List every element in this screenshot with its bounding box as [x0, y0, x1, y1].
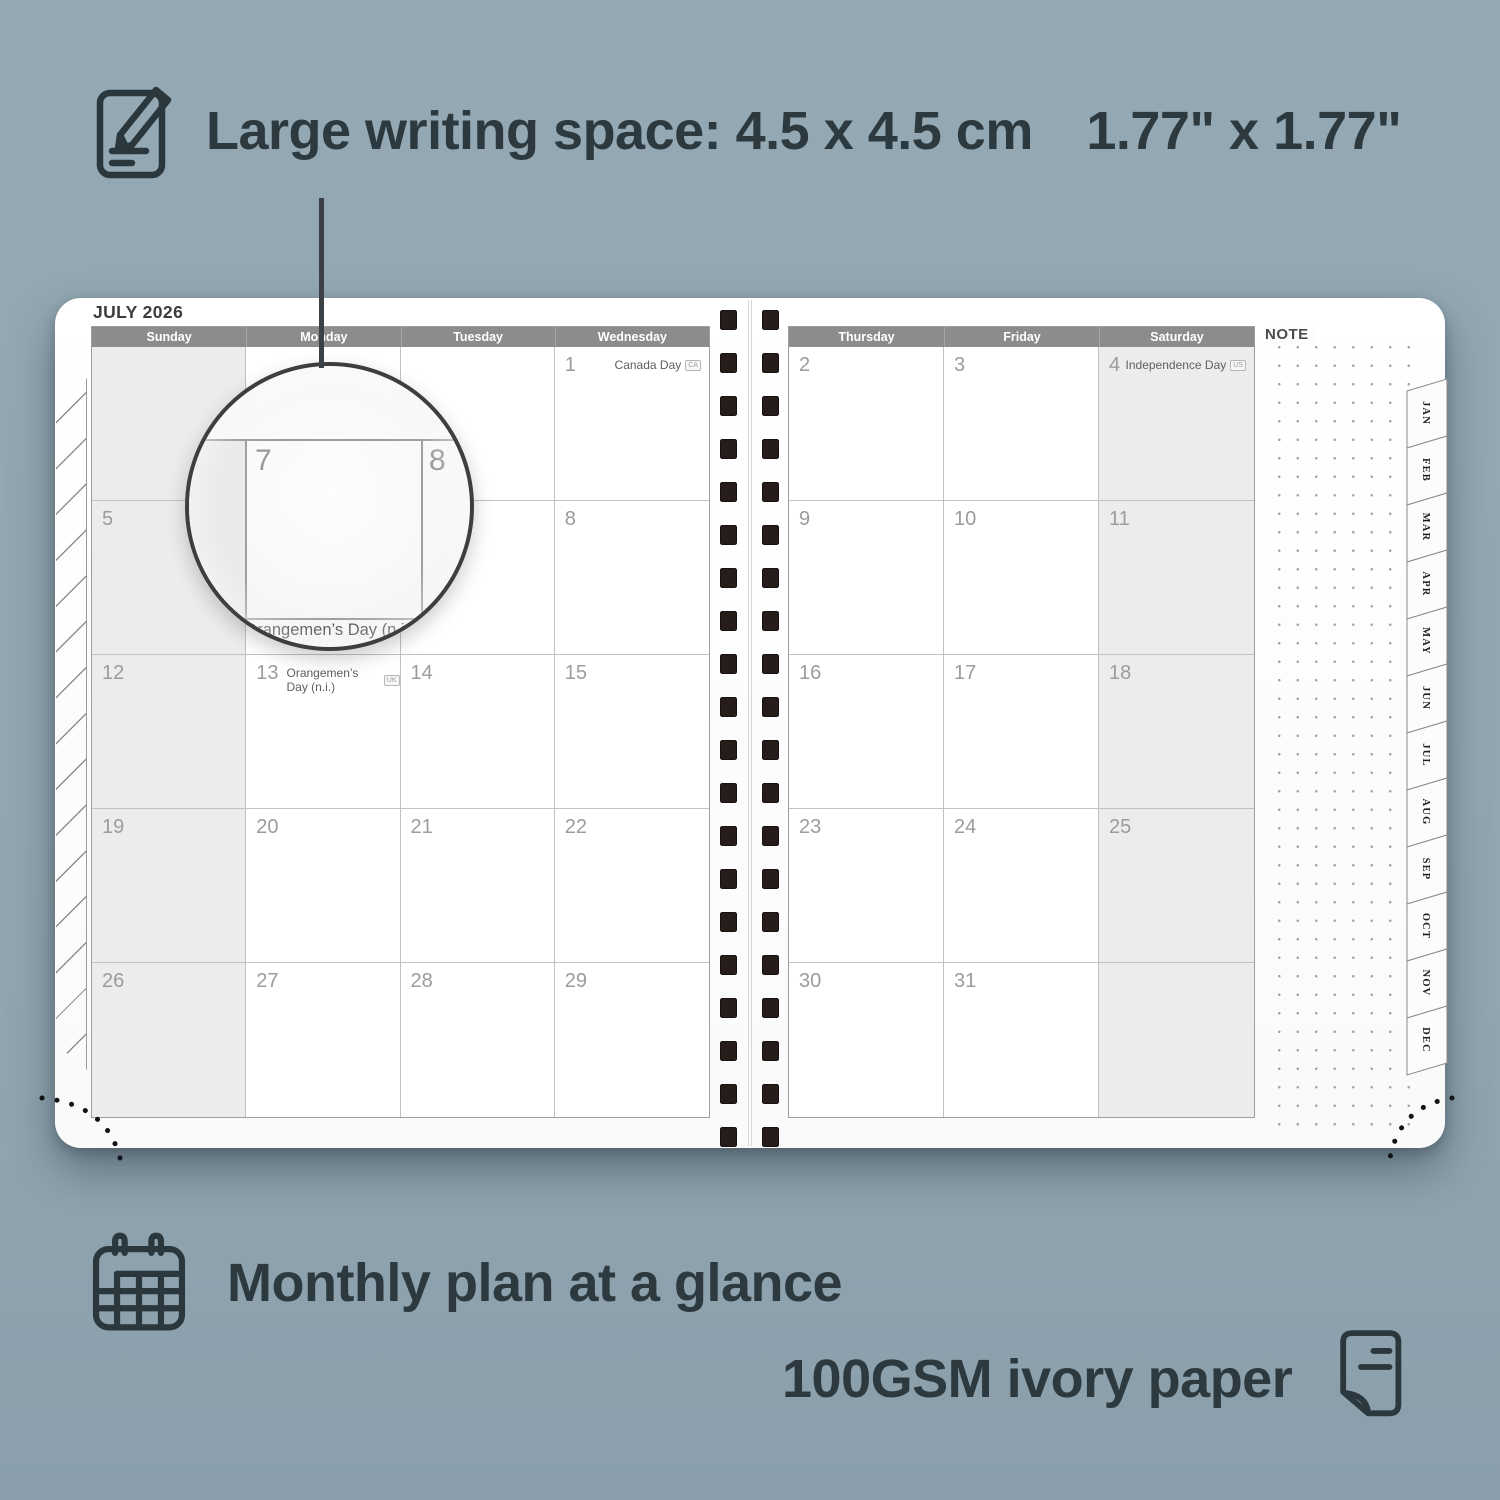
day-header: Thursday [789, 327, 944, 347]
day-number: 2 [789, 347, 810, 377]
holiday-label: Canada DayCA [615, 358, 701, 372]
day-number [1099, 963, 1109, 970]
day-number: 29 [555, 963, 587, 993]
page-edge-hatch [56, 378, 87, 1070]
calendar-cell: 9 [789, 501, 944, 655]
calendar-cell: 22 [555, 809, 709, 963]
top-annotation: Large writing space: 4.5 x 4.5 cm 1.77" … [88, 72, 1401, 184]
calendar-cell: 10 [944, 501, 1099, 655]
day-number [92, 347, 102, 354]
day-number: 11 [1099, 501, 1130, 531]
calendar-cell: 27 [246, 963, 400, 1117]
day-number: 10 [944, 501, 976, 531]
holiday-label: Independence DayUS [1126, 358, 1246, 372]
day-header: Sunday [92, 327, 246, 347]
top-annotation-text: Large writing space: 4.5 x 4.5 cm 1.77" … [206, 100, 1401, 162]
calendar-cell: 8 [555, 501, 709, 655]
country-badge: CA [685, 360, 701, 371]
calendar-cell: 12 [92, 655, 246, 809]
day-number: 16 [789, 655, 821, 685]
calendar-cell: 23 [789, 809, 944, 963]
day-number: 20 [246, 809, 278, 839]
day-number: 26 [92, 963, 124, 993]
calendar-cell: 1Canada DayCA [555, 347, 709, 501]
day-number: 17 [944, 655, 976, 685]
day-number: 9 [789, 501, 810, 531]
calendar-cell [1099, 963, 1254, 1117]
day-number: 18 [1099, 655, 1131, 685]
calendar-cell: 3 [944, 347, 1099, 501]
day-number: 13 [246, 655, 278, 685]
calendar-cell: 4Independence DayUS [1099, 347, 1254, 501]
day-number: 12 [92, 655, 124, 685]
calendar-cell: 15 [555, 655, 709, 809]
bottom-left-annotation: Monthly plan at a glance [85, 1230, 842, 1335]
calendar-cell: 2 [789, 347, 944, 501]
magnifier-vignette [189, 366, 470, 647]
holiday-label: Orangemen’s Day (n.i.)UK [287, 666, 400, 694]
calendar-cell: 18 [1099, 655, 1254, 809]
note-label: NOTE [1265, 326, 1315, 345]
day-number: 27 [246, 963, 278, 993]
holiday-name: Orangemen’s Day (n.i.) [287, 666, 380, 694]
calendar-cell: 25 [1099, 809, 1254, 963]
calendar-cell: 13Orangemen’s Day (n.i.)UK [246, 655, 400, 809]
note-dot-grid [1264, 330, 1414, 1140]
country-badge: US [1230, 360, 1246, 371]
calendar-cell: 24 [944, 809, 1099, 963]
day-number: 24 [944, 809, 976, 839]
page-seam [748, 300, 749, 1146]
day-number: 8 [555, 501, 576, 531]
page-seam [751, 300, 752, 1146]
day-header: Friday [944, 327, 1099, 347]
calendar-cell: 14 [401, 655, 555, 809]
day-number: 22 [555, 809, 587, 839]
bottom-right-annotation-text: 100GSM ivory paper [782, 1348, 1292, 1410]
holiday-name: Independence Day [1126, 358, 1227, 372]
calendar-cell: 19 [92, 809, 246, 963]
calendar-cell: 21 [401, 809, 555, 963]
day-header-row: ThursdayFridaySaturday [789, 327, 1254, 347]
calendar-grid-icon [85, 1230, 193, 1335]
day-number: 5 [92, 501, 113, 531]
magnifier-circle: 7 8 Orangemen’s Day (n.i.) [185, 362, 474, 651]
day-number: 30 [789, 963, 821, 993]
day-number [246, 347, 256, 354]
paper-sheet-icon [1328, 1326, 1410, 1424]
calendar-cell: 16 [789, 655, 944, 809]
calendar-grid: 234Independence DayUS9101116171823242530… [789, 347, 1254, 1117]
bottom-right-annotation: 100GSM ivory paper [782, 1326, 1410, 1424]
day-number: 25 [1099, 809, 1131, 839]
day-number: 15 [555, 655, 587, 685]
calendar-cell: 17 [944, 655, 1099, 809]
month-title: JULY 2026 [93, 302, 183, 323]
day-number: 4 [1099, 347, 1120, 377]
note-pencil-icon [88, 72, 188, 184]
calendar-cell: 29 [555, 963, 709, 1117]
day-header-row: SundayMondayTuesdayWednesday [92, 327, 709, 347]
calendar-cell: 11 [1099, 501, 1254, 655]
calendar-cell: 30 [789, 963, 944, 1117]
calendar-cell: 28 [401, 963, 555, 1117]
day-number: 31 [944, 963, 976, 993]
calendar-cell: 26 [92, 963, 246, 1117]
day-header: Wednesday [555, 327, 709, 347]
country-badge: UK [384, 675, 400, 686]
day-number: 3 [944, 347, 965, 377]
calendar-cell: 20 [246, 809, 400, 963]
day-number: 23 [789, 809, 821, 839]
day-number: 19 [92, 809, 124, 839]
pointer-line [319, 198, 324, 368]
holiday-name: Canada Day [615, 358, 682, 372]
calendar-cell: 31 [944, 963, 1099, 1117]
day-number [401, 347, 411, 354]
day-number: 14 [401, 655, 433, 685]
day-number: 21 [401, 809, 433, 839]
day-header: Tuesday [401, 327, 555, 347]
day-number: 1 [555, 347, 576, 377]
day-header: Saturday [1099, 327, 1254, 347]
bottom-left-annotation-text: Monthly plan at a glance [227, 1252, 842, 1314]
calendar-right-page: ThursdayFridaySaturday 234Independence D… [788, 326, 1255, 1118]
day-number: 28 [401, 963, 433, 993]
